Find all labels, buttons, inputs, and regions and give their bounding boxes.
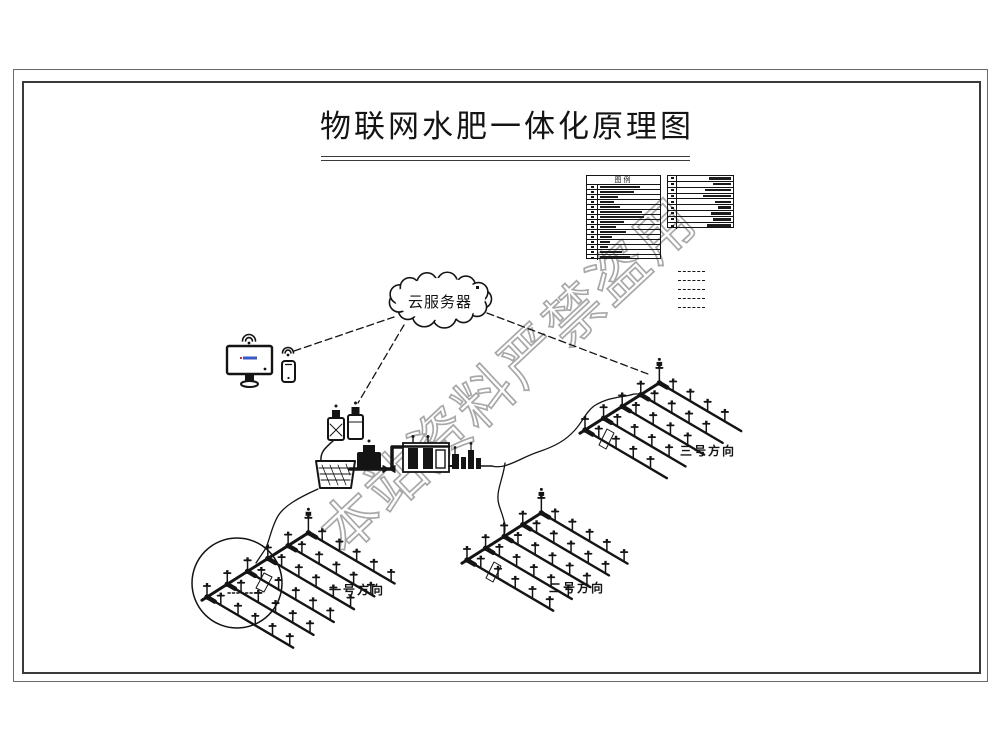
legend-row-text: [677, 206, 733, 208]
linetype-sample: [678, 298, 705, 299]
field-2-label: 二号方向: [549, 579, 605, 596]
legend-row-index: [587, 225, 598, 229]
sprinkler-field-3: [580, 358, 741, 478]
field-tag-1: [256, 573, 272, 592]
legend-row-index: [587, 205, 598, 209]
legend-row-text: [598, 251, 660, 253]
legend-row-text: [677, 201, 733, 203]
legend-row-text: [598, 186, 660, 188]
water-tank-icon: [316, 461, 355, 488]
valve-cluster-icon: [449, 442, 492, 469]
legend-row-text: [598, 196, 660, 198]
legend-row-text: [598, 226, 660, 228]
legend-row-text: [677, 189, 733, 191]
legend-row-index: [587, 255, 598, 260]
pump-icon: [357, 440, 381, 470]
legend-row-index: [668, 205, 677, 210]
signal-link-cloud-field3: [487, 313, 648, 374]
legend-row-index: [668, 217, 677, 222]
fertilizer-tank-icon: [321, 405, 344, 462]
legend-row-text: [598, 241, 660, 243]
legend-row-text: [598, 216, 660, 218]
linetype-samples: [678, 271, 705, 316]
legend-table-main: 图例: [586, 175, 661, 259]
legend-row-index: [587, 245, 598, 249]
feed-pipe-field2-3: [492, 394, 641, 467]
legend-row-index: [668, 176, 677, 181]
legend-row: [587, 255, 660, 260]
legend-row-index: [587, 200, 598, 204]
legend-row-index: [587, 185, 598, 189]
linetype-sample: [678, 280, 705, 281]
legend-row-text: [598, 236, 660, 238]
smartphone-icon: [282, 361, 295, 382]
legend-table-secondary: [667, 175, 734, 228]
linetype-sample: [678, 289, 705, 290]
legend-row-index: [587, 195, 598, 199]
linetype-sample: [678, 307, 705, 308]
field-3-label: 三号方向: [680, 442, 736, 459]
legend-row-index: [587, 210, 598, 214]
legend-row-text: [598, 201, 660, 203]
filter-unit-icon: [403, 435, 449, 472]
legend-row-index: [668, 182, 677, 187]
signal-link-cloud-station: [358, 325, 404, 403]
legend-row-index: [587, 235, 598, 239]
legend-row-index: [587, 240, 598, 244]
legend-row-index: [668, 199, 677, 204]
legend-row-text: [677, 195, 733, 197]
signal-link-client-cloud: [294, 317, 394, 351]
legend-row-index: [668, 194, 677, 199]
drawing-canvas: 本站资料严禁盗用 物联网水肥一体化原理图 云服务器 图例 一号方向 二号方向 三…: [0, 0, 1000, 750]
legend-row-text: [677, 212, 733, 214]
legend-row-index: [587, 250, 598, 254]
legend-row-text: [677, 177, 733, 179]
field-1-label: 一号方向: [329, 581, 385, 598]
legend-row-index: [668, 188, 677, 193]
sprinkler-field-1: [202, 508, 395, 648]
legend-row-text: [598, 246, 660, 248]
wifi-icon: [283, 348, 294, 357]
legend-row-text: [598, 221, 660, 223]
legend-row-index: [587, 220, 598, 224]
page-title: 物联网水肥一体化原理图: [318, 101, 696, 146]
legend-row-text: [677, 218, 733, 220]
monitor-icon: [227, 346, 272, 387]
linetype-sample: [678, 271, 705, 272]
legend-row-text: [598, 231, 660, 233]
legend-row-text: [598, 191, 660, 193]
fertilizer-tank-icon: [348, 402, 363, 440]
legend-row-index: [587, 190, 598, 194]
legend-row-text: [677, 183, 733, 185]
cloud-label: 云服务器: [404, 291, 476, 312]
legend-row-text: [598, 256, 660, 258]
legend-row-index: [587, 230, 598, 234]
legend-row-index: [587, 215, 598, 219]
legend-row-text: [598, 211, 660, 213]
legend-row-text: [677, 224, 733, 226]
legend-row-text: [598, 206, 660, 208]
legend-row-index: [668, 211, 677, 216]
wifi-icon: [243, 335, 256, 345]
legend-row: [668, 223, 733, 229]
legend-header: 图例: [587, 176, 660, 185]
legend-row-index: [668, 223, 677, 229]
